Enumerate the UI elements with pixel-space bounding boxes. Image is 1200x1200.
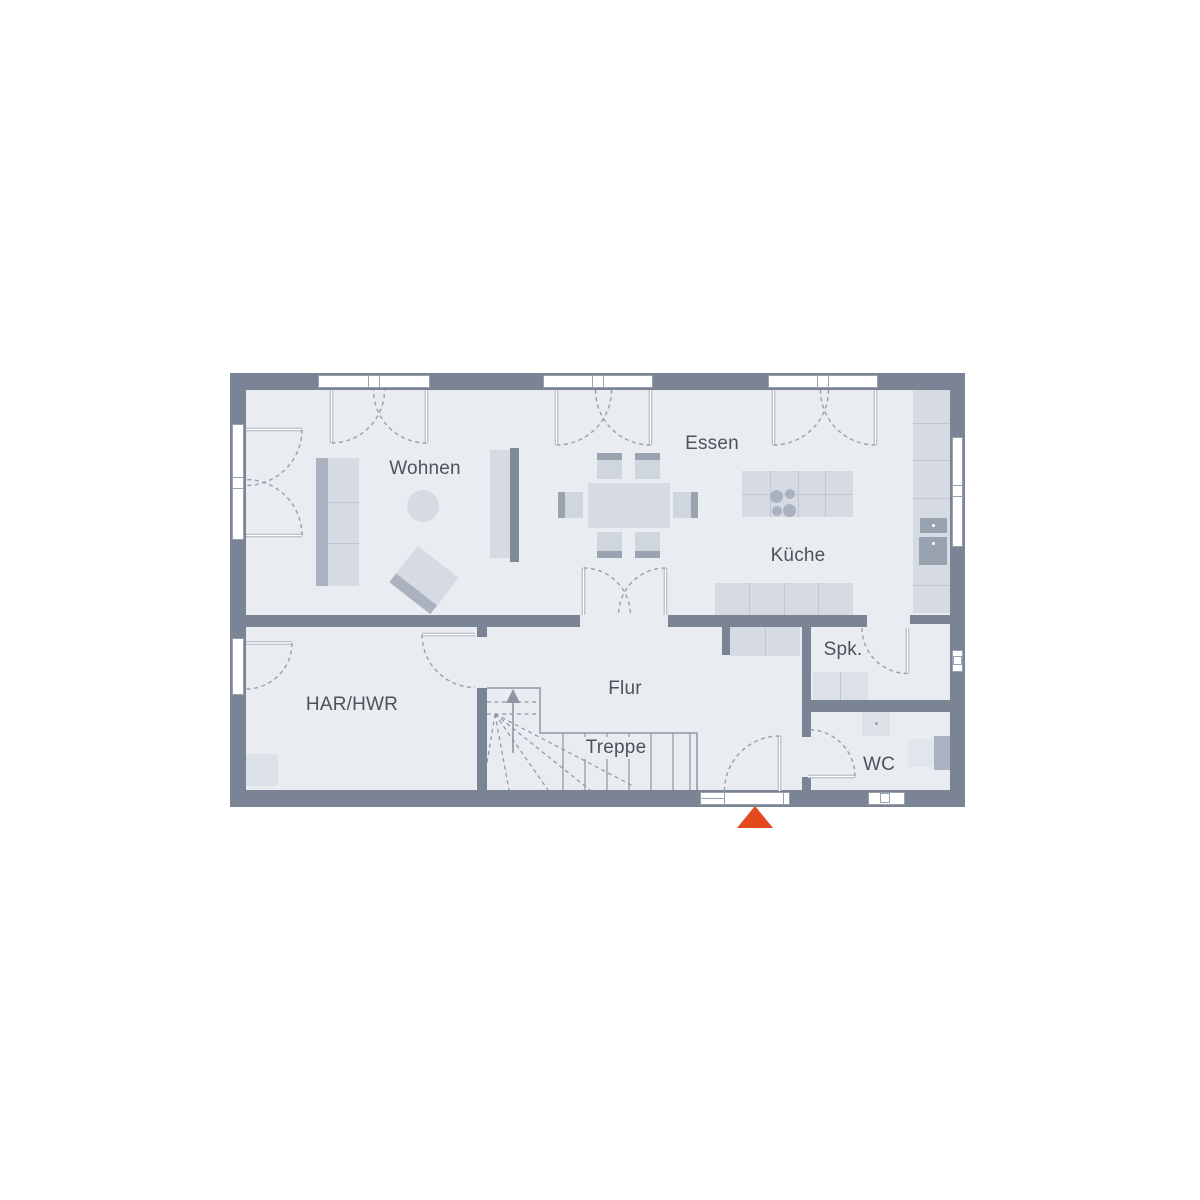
tv-screen (510, 448, 519, 562)
room-label-har-hwr: HAR/HWR (306, 694, 398, 716)
wc-sink (862, 712, 890, 736)
wall-stair (477, 688, 487, 790)
room-label-spk: Spk. (824, 639, 863, 661)
room-label-flur: Flur (608, 678, 642, 700)
counter-line (913, 585, 950, 586)
wall-hall-living-2 (487, 615, 580, 627)
french-door-left-symbol (232, 477, 244, 489)
dining-chair (635, 453, 660, 479)
wall-hall-kitchen (668, 615, 867, 627)
pantry-shelf-line (840, 672, 841, 700)
floor-plan: Wohnen Essen Küche Spk. Flur Treppe HAR/… (230, 373, 965, 807)
entrance-sidelight-bar (700, 798, 724, 799)
wall-spk-left (802, 627, 811, 700)
dining-chair (597, 453, 622, 479)
wc-toilet-bowl (908, 739, 934, 767)
wall-bottom (230, 790, 965, 807)
tv-lowboard (490, 450, 510, 558)
built-in-fridge (919, 537, 947, 565)
entrance-sidelight-divider (724, 792, 725, 805)
island-line (742, 494, 853, 495)
dining-chair (558, 492, 583, 518)
cooktop-burner (772, 506, 782, 516)
utility-equipment (246, 754, 278, 786)
entrance-arrow-icon (737, 806, 773, 828)
room-label-treppe: Treppe (583, 737, 650, 759)
dining-chair (635, 532, 660, 558)
wall-wc-left-lower (802, 777, 811, 790)
wall-stub-wardrobe (722, 627, 730, 655)
sofa-cushion-line (328, 543, 359, 544)
room-label-kueche: Küche (771, 545, 826, 567)
wall-hall-living (246, 615, 477, 627)
wall-spk-wc (802, 700, 952, 712)
room-label-wohnen: Wohnen (389, 458, 461, 480)
built-in-oven (920, 518, 947, 533)
window-top-1-symbol (368, 375, 380, 388)
counter-line (913, 498, 950, 499)
window-top-3-symbol (817, 375, 829, 388)
dining-chair (597, 532, 622, 558)
side-table-round (407, 490, 439, 522)
door-har-exterior (232, 638, 244, 695)
room-label-essen: Essen (685, 433, 739, 455)
wc-toilet-tank (934, 736, 950, 770)
page: Wohnen Essen Küche Spk. Flur Treppe HAR/… (0, 0, 1200, 1200)
window-top-2-symbol (592, 375, 604, 388)
counter-line (913, 423, 950, 424)
counter-line (749, 583, 750, 615)
window-kitchen-right-symbol (952, 485, 963, 497)
window-wc-bottom-symbol (880, 793, 890, 803)
entrance-jamb (783, 792, 784, 805)
window-spk-right-symbol (953, 656, 962, 665)
counter-line (913, 460, 950, 461)
dining-chair (673, 492, 698, 518)
sofa (328, 458, 359, 586)
wall-wc-left-upper (802, 712, 811, 737)
cooktop-burner (770, 490, 783, 503)
counter-line (784, 583, 785, 615)
sofa-backrest (316, 458, 328, 586)
wardrobe-line (765, 627, 766, 656)
cooktop-burner (785, 489, 795, 499)
room-label-wc: WC (863, 754, 895, 776)
cooktop-burner (783, 504, 796, 517)
dining-table (588, 483, 670, 528)
sofa-cushion-line (328, 502, 359, 503)
counter-line (818, 583, 819, 615)
wall-stub-har-door (477, 615, 487, 637)
wall-kitchen-spk (910, 615, 952, 624)
